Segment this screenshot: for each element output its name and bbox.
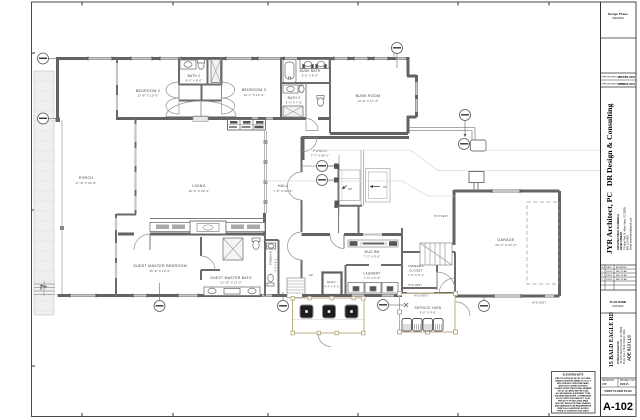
svg-text:GUEST MASTER BATH: GUEST MASTER BATH bbox=[210, 276, 252, 280]
svg-text:SERVICE YARD: SERVICE YARD bbox=[415, 306, 442, 310]
svg-text:7'-6" X 6'-8": 7'-6" X 6'-8" bbox=[364, 276, 381, 280]
svg-text:HYD VENT: HYD VENT bbox=[414, 294, 429, 297]
svg-text:9'-6" X 8'-0": 9'-6" X 8'-0" bbox=[302, 74, 319, 78]
svg-text:DRAWN BY:: DRAWN BY: bbox=[602, 379, 615, 382]
svg-text:POWDER: POWDER bbox=[269, 251, 273, 265]
svg-text:APRIL 3, 2024: APRIL 3, 2024 bbox=[618, 82, 636, 86]
svg-text:4'-4" X 4'-2": 4'-4" X 4'-2" bbox=[324, 286, 340, 289]
svg-text:PORCH: PORCH bbox=[79, 176, 94, 180]
svg-text:8'-0" X 8'-0": 8'-0" X 8'-0" bbox=[186, 79, 203, 83]
svg-text:6/3/2024: 6/3/2024 bbox=[613, 304, 624, 308]
svg-text:ADDRESS: ADDRESS bbox=[616, 266, 627, 269]
svg-text:19'-0" X 23'-4": 19'-0" X 23'-4" bbox=[188, 189, 209, 193]
svg-text:JYR Architect, PC DR Design: JYR Architect, PC DR Design & Consulting bbox=[605, 104, 614, 254]
svg-text:JULY 11, 2023: JULY 11, 2023 bbox=[618, 75, 636, 79]
svg-text:4/3/2024: 4/3/2024 bbox=[612, 16, 624, 20]
svg-text:6/2/24: 6/2/24 bbox=[606, 279, 613, 281]
svg-text:2023-15: 2023-15 bbox=[620, 384, 629, 386]
svg-text:A-102: A-102 bbox=[603, 401, 633, 413]
svg-text:UP: UP bbox=[348, 187, 352, 191]
svg-text:17'-8" X 33'-8": 17'-8" X 33'-8" bbox=[75, 181, 96, 185]
svg-text:ELEVATION NOTE: ELEVATION NOTE bbox=[563, 374, 584, 377]
svg-text:GUEST MASTER BEDROOM: GUEST MASTER BEDROOM bbox=[133, 264, 187, 268]
svg-text:ADE 913 LLC: ADE 913 LLC bbox=[627, 335, 632, 361]
svg-text:REV PLAN: REV PLAN bbox=[616, 274, 627, 277]
svg-text:LAUNDRY: LAUNDRY bbox=[363, 272, 381, 276]
svg-text:5/1/24: 5/1/24 bbox=[606, 271, 613, 273]
svg-text:CLOSET: CLOSET bbox=[409, 269, 423, 273]
svg-text:HYD VENT: HYD VENT bbox=[408, 284, 423, 287]
svg-text:NO: NO bbox=[602, 267, 606, 269]
svg-text:REV PLAN: REV PLAN bbox=[616, 278, 627, 281]
svg-text:REV PLAN: REV PLAN bbox=[616, 270, 627, 273]
svg-text:HYD VENT: HYD VENT bbox=[434, 215, 449, 218]
svg-text:JYR: JYR bbox=[602, 384, 607, 386]
svg-text:ELEV.: ELEV. bbox=[327, 280, 336, 284]
svg-text:9'-0" X 9'-6": 9'-0" X 9'-6" bbox=[420, 311, 437, 315]
svg-text:13'-9" X 17'-0": 13'-9" X 17'-0" bbox=[357, 99, 378, 103]
svg-text:15 BALD EAGLE RD: 15 BALD EAGLE RD bbox=[609, 312, 615, 367]
svg-text:7'-2" X 5'-2": 7'-2" X 5'-2" bbox=[408, 273, 425, 277]
svg-text:BATH 2: BATH 2 bbox=[188, 74, 201, 78]
svg-text:HYD VENT: HYD VENT bbox=[532, 302, 547, 305]
svg-text:BATH 3: BATH 3 bbox=[288, 96, 301, 100]
svg-text:7'-6" X 30'-9": 7'-6" X 30'-9" bbox=[273, 189, 292, 193]
svg-text:PROJECT NO:: PROJECT NO: bbox=[620, 380, 636, 382]
svg-text:HALL: HALL bbox=[278, 184, 288, 188]
svg-text:BUNK ROOM: BUNK ROOM bbox=[356, 94, 381, 98]
svg-text:13'-8" X 13'-0": 13'-8" X 13'-0" bbox=[137, 94, 158, 98]
svg-text:4'-0 X 6'-2: 4'-0 X 6'-2 bbox=[275, 258, 278, 271]
svg-text:Email: jyrarchitect@gmail.com: Email: jyrarchitect@gmail.com bbox=[630, 218, 633, 250]
svg-text:UP: UP bbox=[383, 185, 387, 189]
svg-text:LIVING: LIVING bbox=[192, 184, 206, 188]
svg-text:23'-0" X 23'-0": 23'-0" X 23'-0" bbox=[495, 243, 516, 247]
svg-text:FIRST FLOOR PLAN: FIRST FLOOR PLAN bbox=[604, 389, 631, 393]
svg-text:MUD RM: MUD RM bbox=[365, 250, 380, 254]
svg-text:13'-7" X 13'-0": 13'-7" X 13'-0" bbox=[243, 93, 264, 97]
svg-text:12'-10" X 13'-0": 12'-10" X 13'-0" bbox=[220, 281, 242, 285]
svg-text:15'-8" X 13'-0": 15'-8" X 13'-0" bbox=[149, 269, 170, 273]
svg-text:8'-0" X 7'-6": 8'-0" X 7'-6" bbox=[286, 101, 303, 105]
svg-text:7'-7" X 26'-0": 7'-7" X 26'-0" bbox=[311, 154, 329, 158]
svg-text:BUNK BATH: BUNK BATH bbox=[300, 69, 321, 73]
svg-text:GARAGE: GARAGE bbox=[497, 238, 514, 242]
svg-text:5/8/24: 5/8/24 bbox=[606, 275, 613, 277]
svg-text:7'-2" X 8'-0": 7'-2" X 8'-0" bbox=[364, 255, 381, 259]
svg-text:BEDROOM 2: BEDROOM 2 bbox=[136, 89, 160, 93]
svg-text:BEDROOM 3: BEDROOM 3 bbox=[242, 88, 266, 92]
svg-text:PRIOR TO CONSTRUCTION START: PRIOR TO CONSTRUCTION START bbox=[557, 410, 589, 413]
svg-text:UP: UP bbox=[309, 273, 313, 277]
svg-text:DATE: DATE bbox=[606, 266, 612, 269]
